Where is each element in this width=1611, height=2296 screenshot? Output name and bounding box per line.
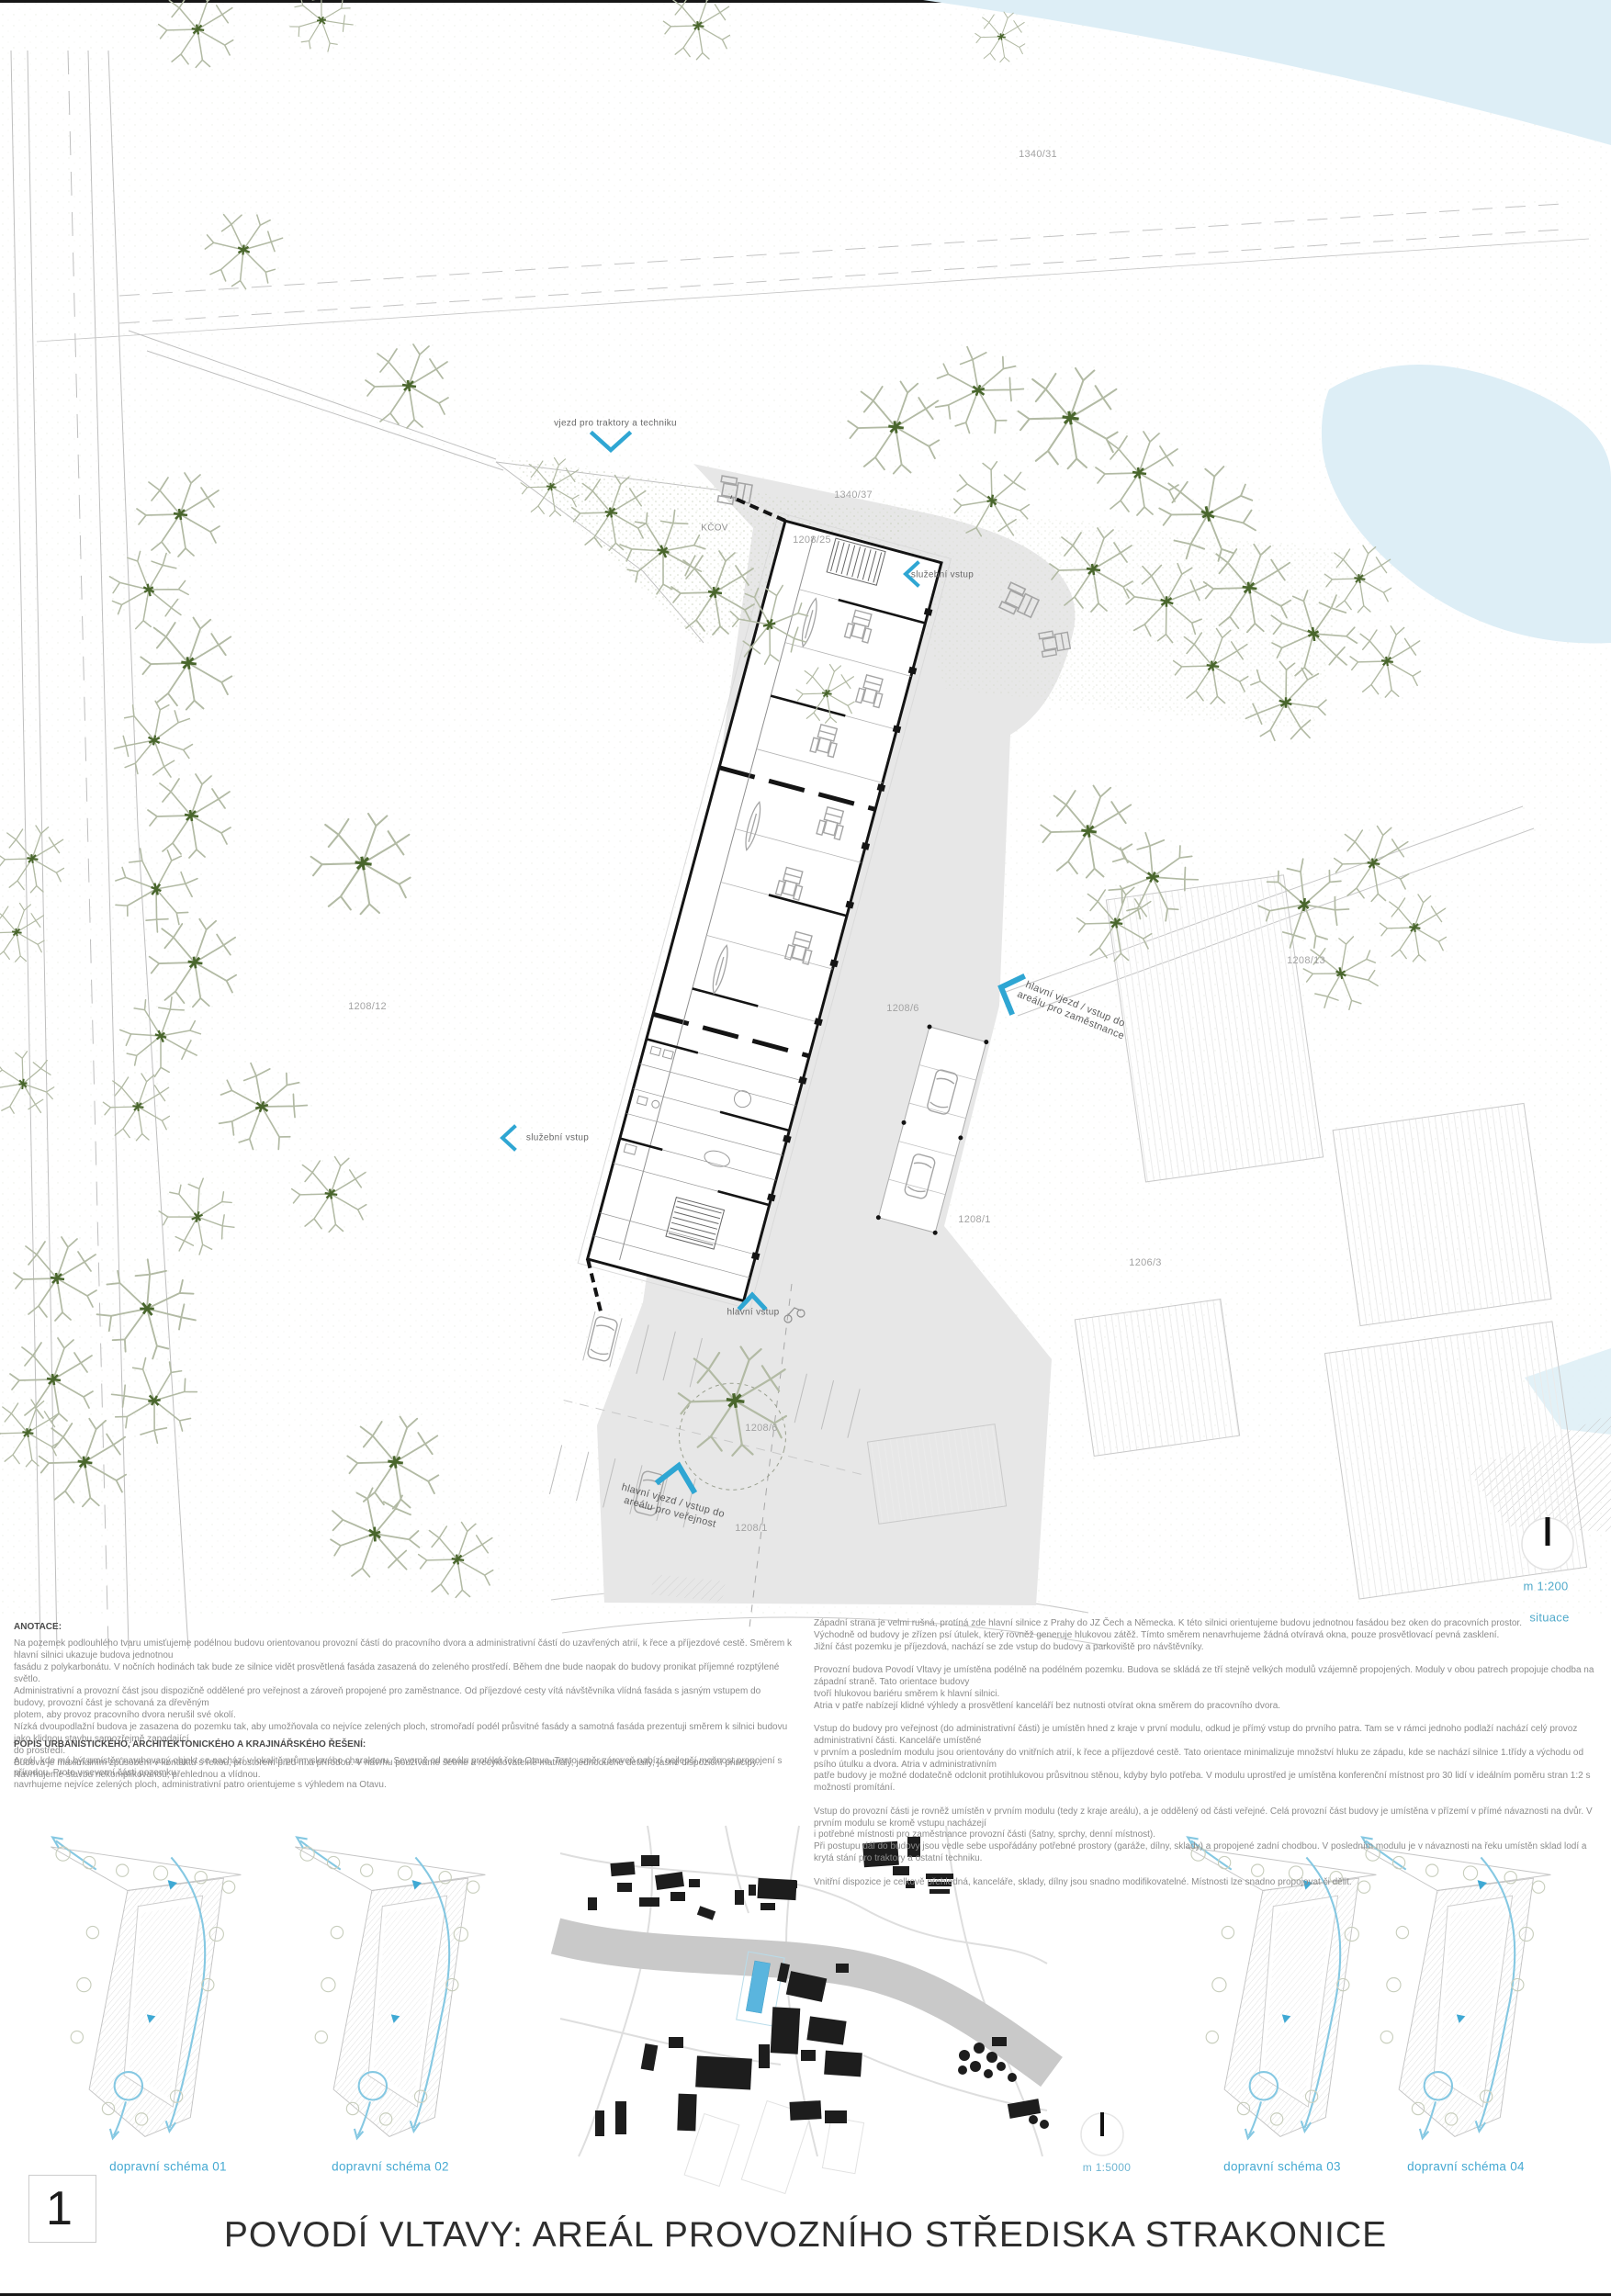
scheme-01 xyxy=(51,1838,241,2139)
popis-body: Areál, kde má být umístěn navrhovaný obj… xyxy=(14,1755,793,1791)
parcel-label-1208-25: 1208/25 xyxy=(793,535,831,546)
map-scale-label: m 1:5000 xyxy=(1083,2161,1131,2174)
parcel-label-1208-13: 1208/13 xyxy=(1287,955,1325,966)
presentation-board: 1340/31 1340/37 1208/25 1208/12 1208/6 1… xyxy=(0,0,1611,2296)
page-title: POVODÍ VLTAVY: AREÁL PROVOZNÍHO STŘEDISK… xyxy=(0,2215,1611,2256)
parcel-label-1208-1a: 1208/1 xyxy=(958,1214,990,1225)
main-entry-label: hlavní vstup xyxy=(727,1308,780,1318)
north-arrow-map xyxy=(1081,2112,1123,2155)
scheme-02-label: dopravní schéma 02 xyxy=(332,2160,449,2174)
service-entry-label-mid: služební vstup xyxy=(526,1133,589,1143)
parcel-label-1206-3: 1206/3 xyxy=(1129,1257,1161,1268)
north-arrow-site xyxy=(1522,1517,1573,1570)
parcel-label-1340-37: 1340/37 xyxy=(834,490,873,501)
right-column-body: Západní strana je velmi rušná, protíná z… xyxy=(814,1618,1598,1888)
parcel-label-1340-31: 1340/31 xyxy=(1019,149,1057,160)
popis-heading: POPIS URBANISTICKÉHO, ARCHITEKTONICKÉHO … xyxy=(14,1739,366,1750)
scheme-02 xyxy=(295,1838,485,2139)
tractor-entry-label: vjezd pro traktory a techniku xyxy=(554,419,677,429)
kcov-label: KČOV xyxy=(701,523,728,534)
scheme-03-label: dopravní schéma 03 xyxy=(1223,2160,1341,2174)
scheme-01-label: dopravní schéma 01 xyxy=(109,2160,227,2174)
anotace-heading: ANOTACE: xyxy=(14,1622,62,1632)
parcel-label-1208-6a: 1208/6 xyxy=(886,1003,918,1014)
parcel-label-1208-12: 1208/12 xyxy=(348,1001,387,1012)
parcel-label-1208-1b: 1208/1 xyxy=(735,1523,767,1534)
scheme-04-label: dopravní schéma 04 xyxy=(1407,2160,1525,2174)
site-plan-drawing xyxy=(0,0,1611,2296)
parcel-label-1208-6b: 1208/6 xyxy=(745,1423,777,1434)
site-scale-label: m 1:200 xyxy=(1523,1580,1568,1593)
service-entry-label-top: služební vstup xyxy=(911,570,974,580)
